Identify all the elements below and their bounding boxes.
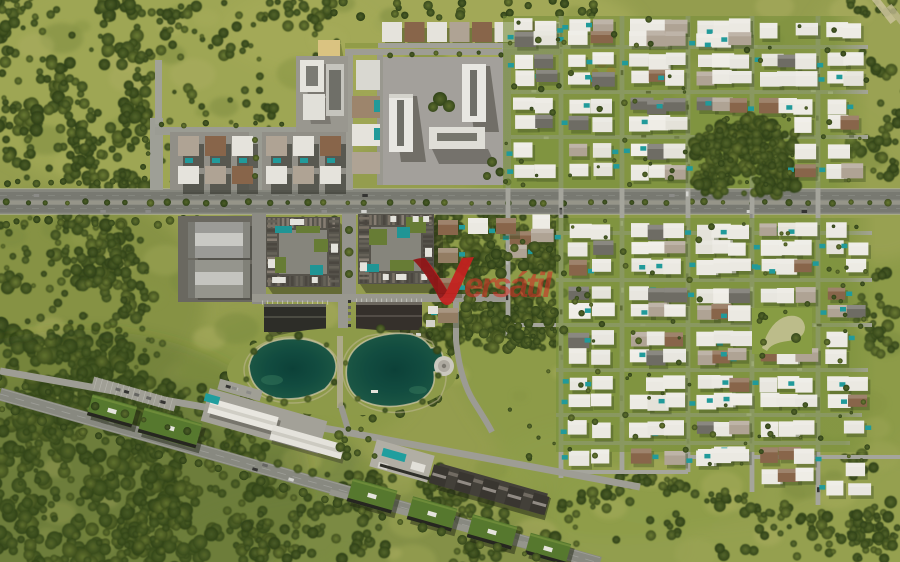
svg-text:ersátil: ersátil <box>464 266 553 305</box>
